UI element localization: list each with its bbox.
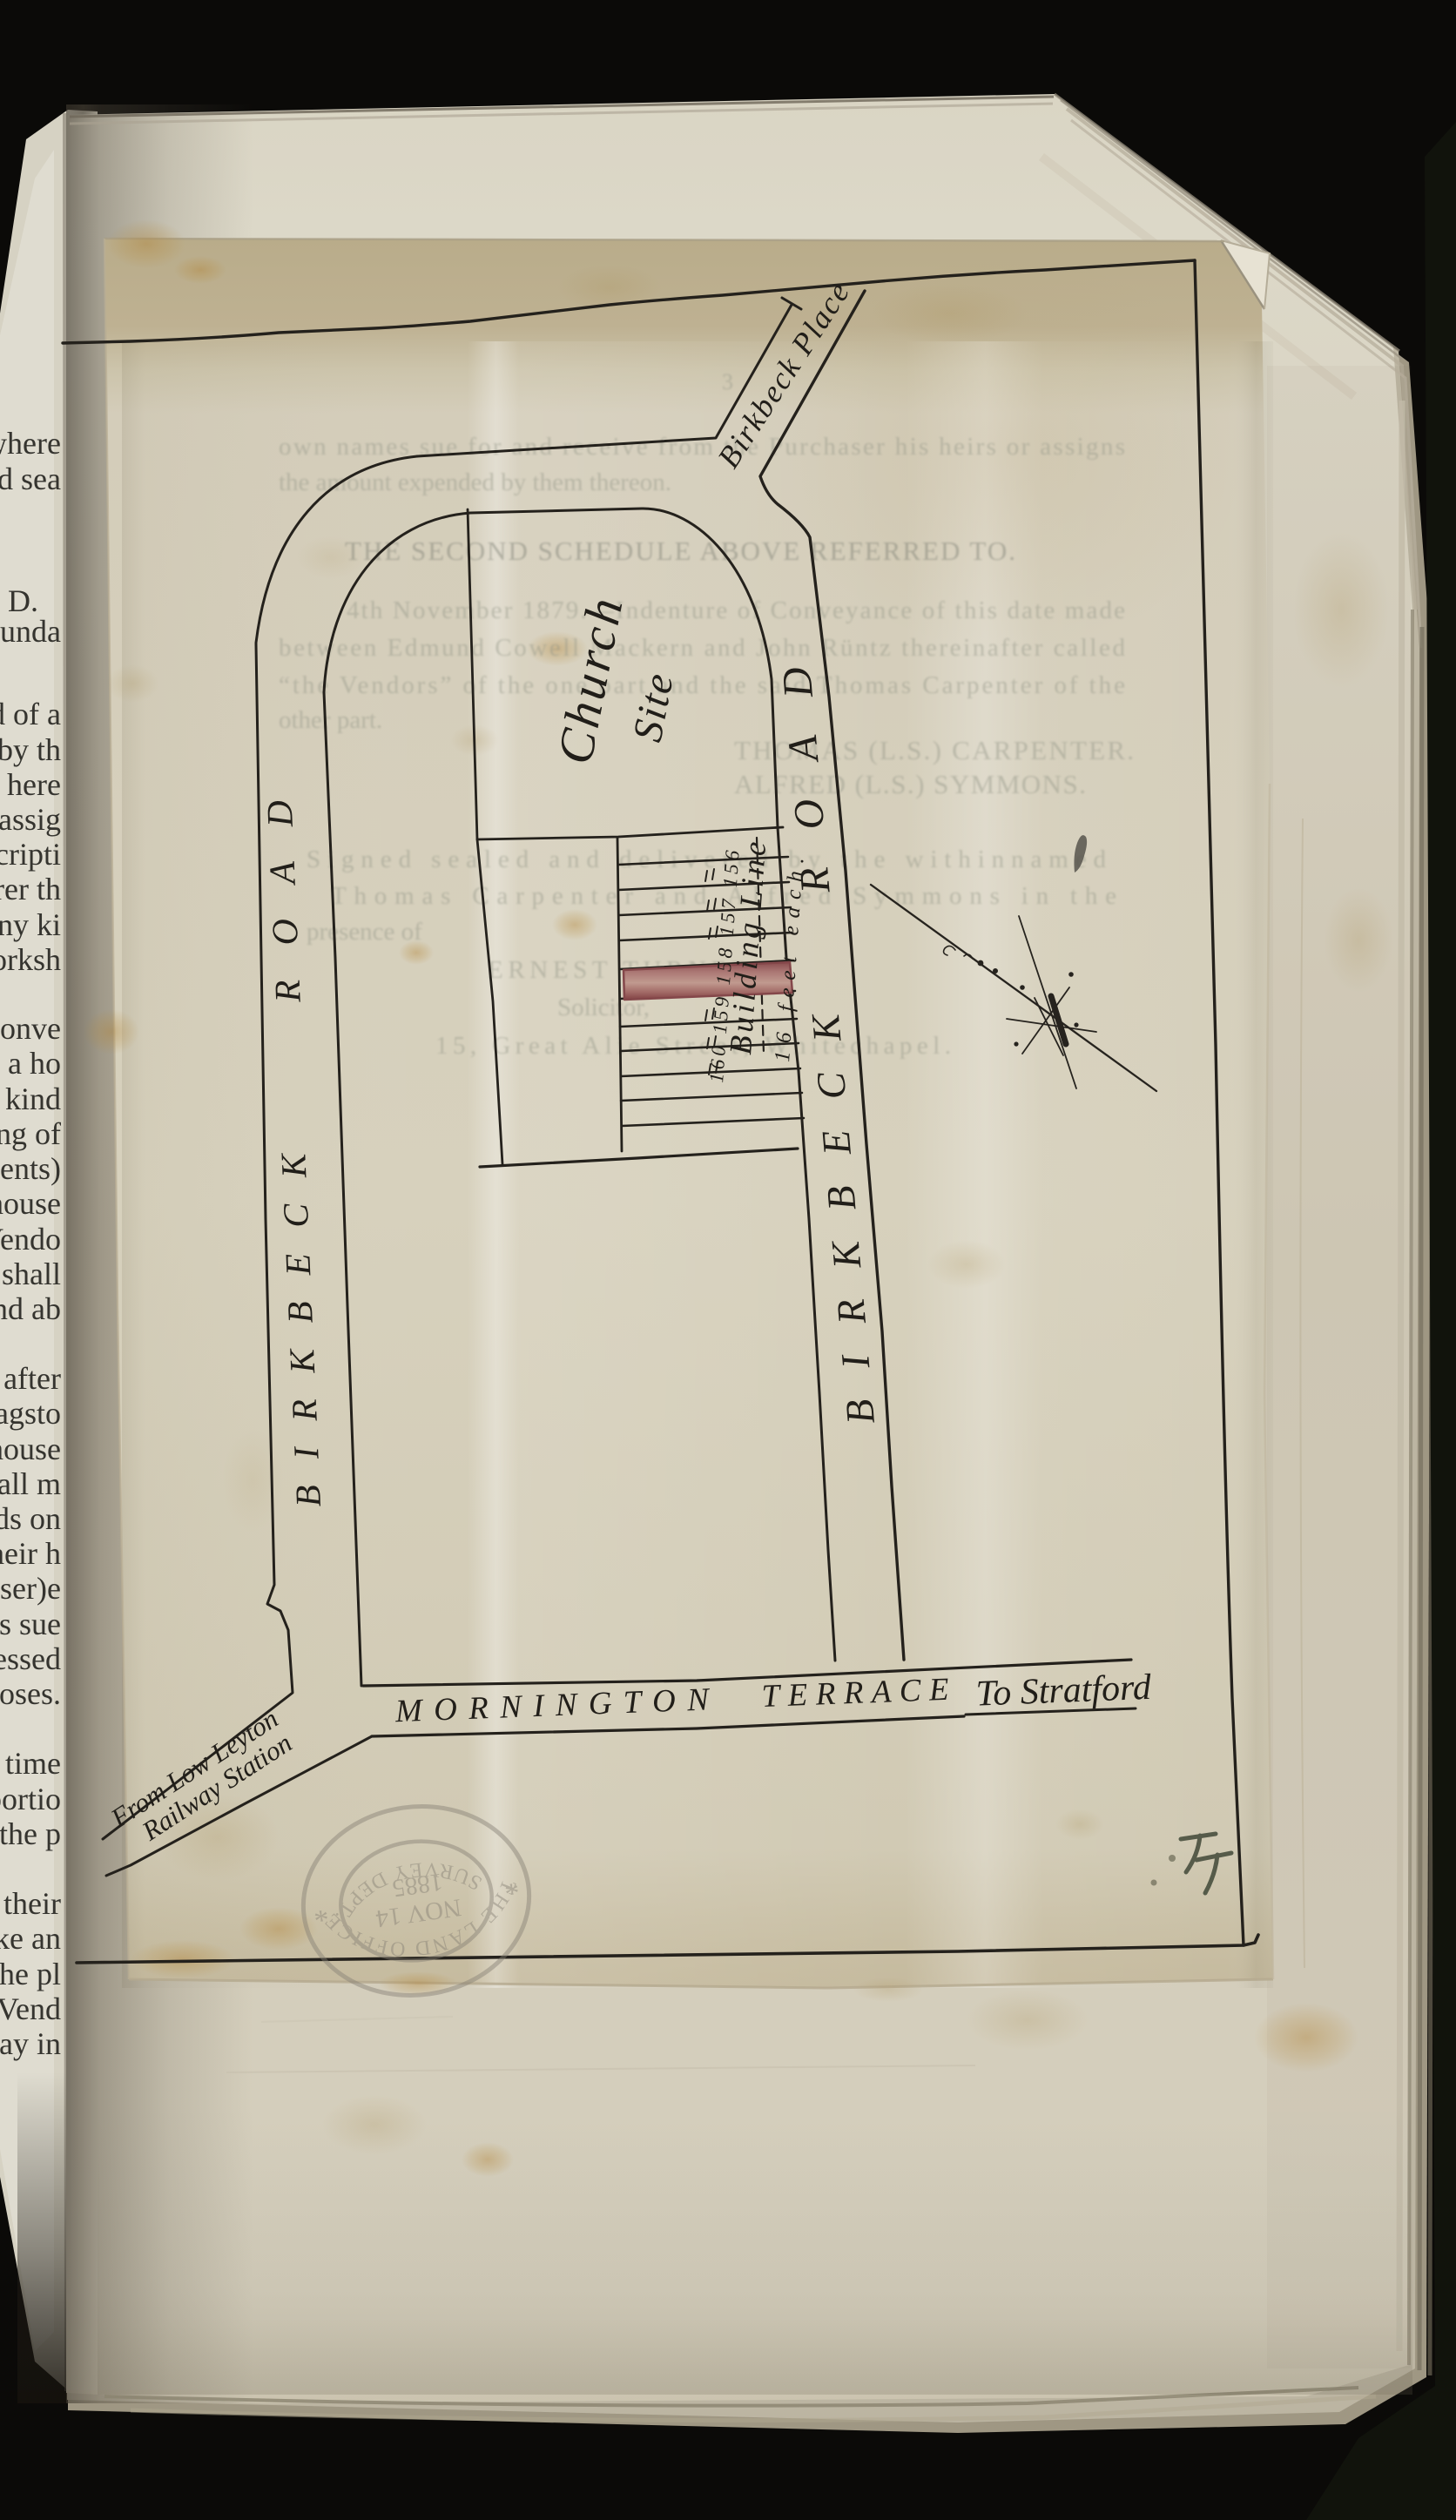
svg-text:to time: to time [0,1746,61,1781]
svg-text:h flagsto: h flagsto [0,1396,61,1431]
svg-text:proportio: proportio [0,1782,61,1816]
svg-text:land ab: land ab [0,1291,61,1326]
svg-text:resents): resents) [0,1151,61,1186]
svg-text:descripti: descripti [0,837,61,872]
svg-text:of by th: of by th [0,732,61,767]
svg-text:y house: y house [0,1186,61,1221]
svg-text:ny kind: ny kind [0,1081,61,1116]
svg-text:or assig: or assig [0,802,61,837]
svg-text:may in: may in [0,2026,61,2061]
svg-text:til the p: til the p [0,1816,61,1851]
svg-text:3: 3 [722,369,733,394]
svg-text:worksh: worksh [0,942,61,977]
svg-text:where: where [0,426,61,461]
svg-text:D.: D. [8,583,38,618]
svg-text:ch house: ch house [0,1432,61,1466]
svg-text:the amount expended by them th: the amount expended by them thereon. [279,468,671,496]
svg-text:earer th: earer th [0,872,61,906]
svg-text:chaser)e: chaser)e [0,1571,61,1606]
svg-text:and sea: and sea [0,462,61,496]
svg-text:presence of: presence of [307,918,422,946]
svg-text:“the Vendors” of the one part: “the Vendors” of the one part and the sa… [279,671,1125,699]
svg-text:conve: conve [0,1011,61,1046]
svg-text:their h: their h [0,1536,61,1571]
svg-text:d shall m: d shall m [0,1466,61,1501]
svg-text:f any ki: f any ki [0,907,61,942]
svg-text:To Stratford: To Stratford [975,1668,1153,1715]
svg-text:the Vend: the Vend [0,1991,61,2026]
svg-text:e Vendo: e Vendo [0,1222,61,1257]
svg-text:oads on: oads on [0,1501,61,1536]
svg-text:xpressed: xpressed [0,1641,61,1676]
svg-text:bounda: bounda [0,614,61,649]
svg-text:ved of a: ved of a [0,697,61,731]
svg-text:ule here: ule here [0,767,61,802]
svg-text:or a ho: or a ho [0,1046,61,1081]
svg-text:THE SECOND SCHEDULE ABOVE REFE: THE SECOND SCHEDULE ABOVE REFERRED TO. [345,536,1015,566]
svg-text:make an: make an [0,1921,61,1956]
svg-text:rposes.: rposes. [0,1676,61,1711]
svg-text:own names sue for and receive: own names sue for and receive from the P… [279,433,1125,461]
svg-text:ly after: ly after [0,1361,61,1396]
svg-text:mes sue: mes sue [0,1607,61,1641]
svg-text:on shall: on shall [0,1257,61,1291]
svg-text:other part.: other part. [279,706,382,734]
svg-text:or their: or their [0,1886,61,1921]
svg-text:ng of: ng of [0,1116,61,1151]
svg-text:f the pl: f the pl [0,1957,61,1991]
